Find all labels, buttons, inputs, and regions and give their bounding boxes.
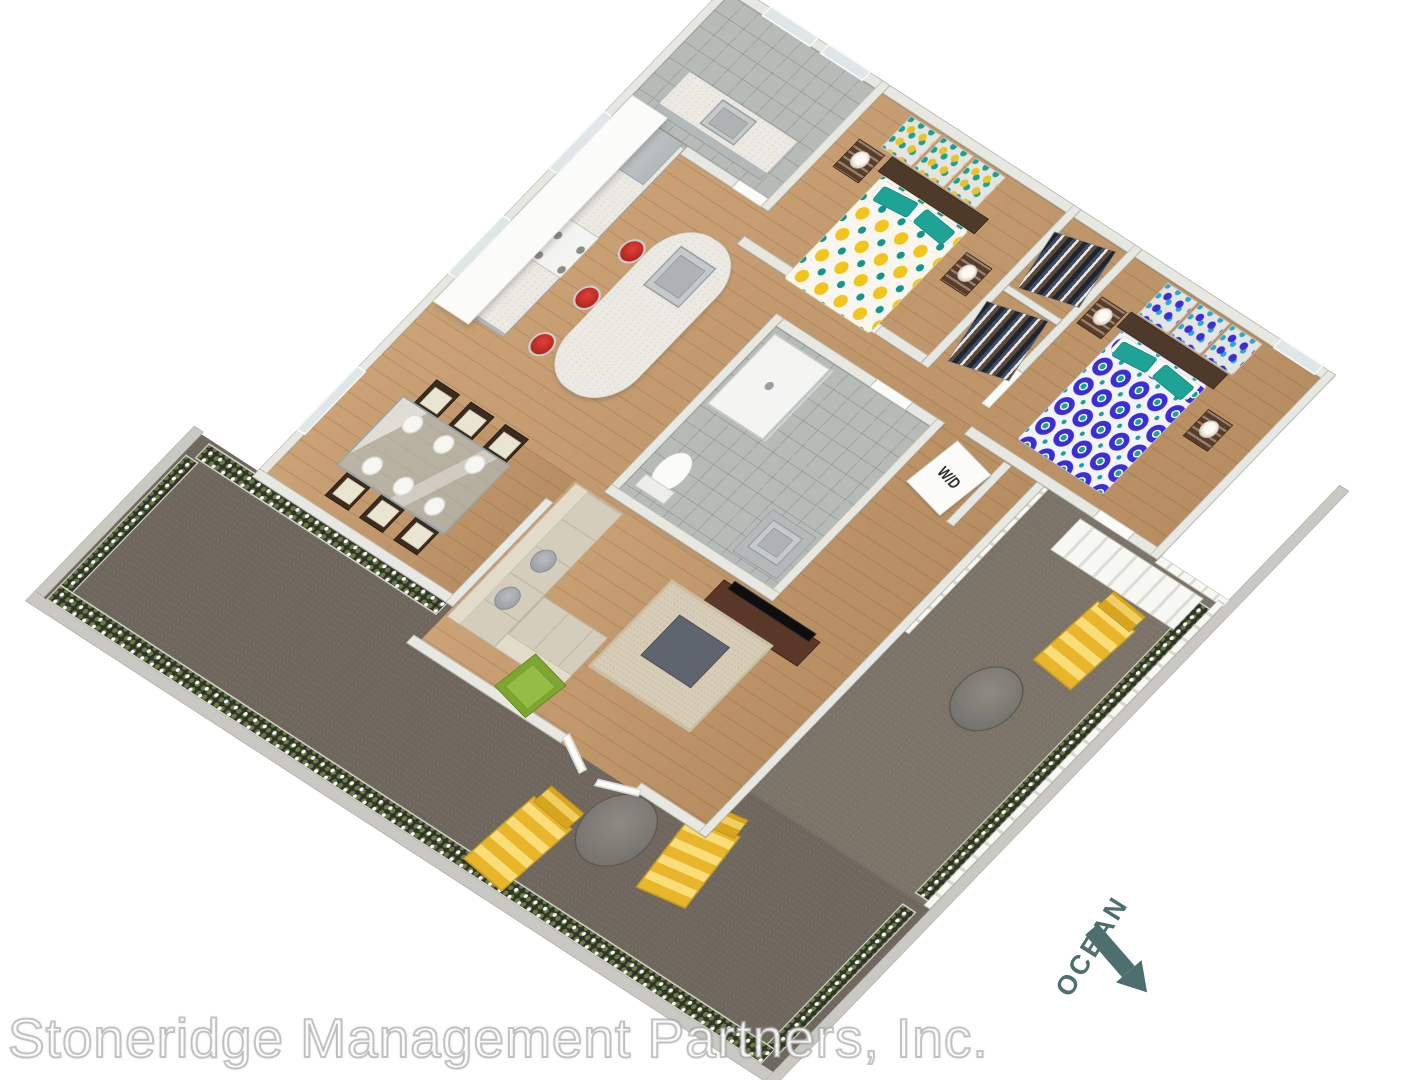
washer-dryer-label: W/D	[933, 464, 965, 493]
sink-basin	[757, 528, 793, 558]
apartment-plan-projection: W/D	[0, 0, 1408, 1080]
shower-drain	[763, 380, 776, 391]
floor-plan-render: W/D OCEAN	[0, 0, 1408, 1080]
watermark-text: Stoneridge Management Partners, Inc.	[8, 1006, 1308, 1070]
